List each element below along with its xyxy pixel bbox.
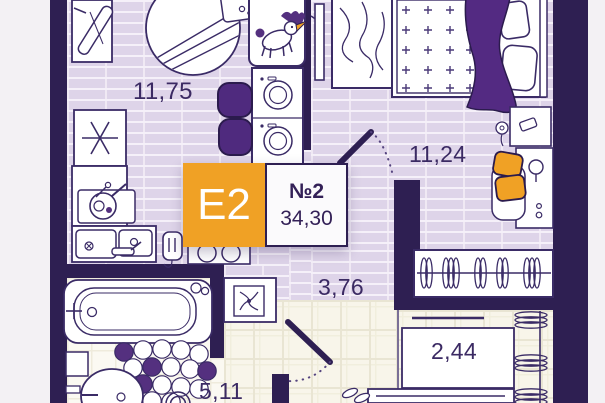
apartment-number: №2	[289, 180, 324, 204]
apartment-info: №2 34,30	[265, 163, 348, 247]
apartment-type-badge: Е2	[183, 163, 265, 247]
ironing-board-icon	[72, 0, 114, 62]
hallway-area-label: 3,76	[318, 276, 364, 299]
kitchen-sink-icon	[72, 226, 156, 262]
washing-machine-icon	[252, 68, 303, 165]
living-room-area-label: 11,75	[133, 80, 193, 104]
door-swing-icon	[284, 322, 330, 381]
bathtub-icon	[64, 280, 212, 343]
bathroom-area-label: 5,11	[199, 380, 243, 403]
kitchen-table-icon	[74, 110, 126, 166]
blanket-panel-icon	[332, 0, 394, 88]
flower-icon	[496, 122, 508, 146]
chair-icon	[492, 151, 526, 220]
shoes-icon	[341, 386, 371, 403]
apartment-badge: Е2 №2 34,30	[183, 163, 348, 247]
floor-plan: 11,75 11,24 3,76 2,44 5,11 Е2 №2 34,30	[0, 0, 605, 403]
unicorn-icon	[249, 0, 307, 66]
closet-area-label: 2,44	[431, 340, 477, 363]
nightstand-icon	[510, 107, 551, 146]
clothes-hanger-icon	[515, 312, 547, 403]
tv-icon	[311, 4, 324, 80]
light-switch-icon	[163, 232, 182, 267]
bedroom-area-label: 11,24	[409, 143, 466, 166]
frying-pan-icon	[72, 166, 135, 226]
wardrobe-hangers	[414, 250, 553, 297]
apartment-total-area: 34,30	[280, 207, 333, 231]
stool-icon	[218, 83, 252, 155]
ventilation-fan-icon	[224, 278, 276, 322]
